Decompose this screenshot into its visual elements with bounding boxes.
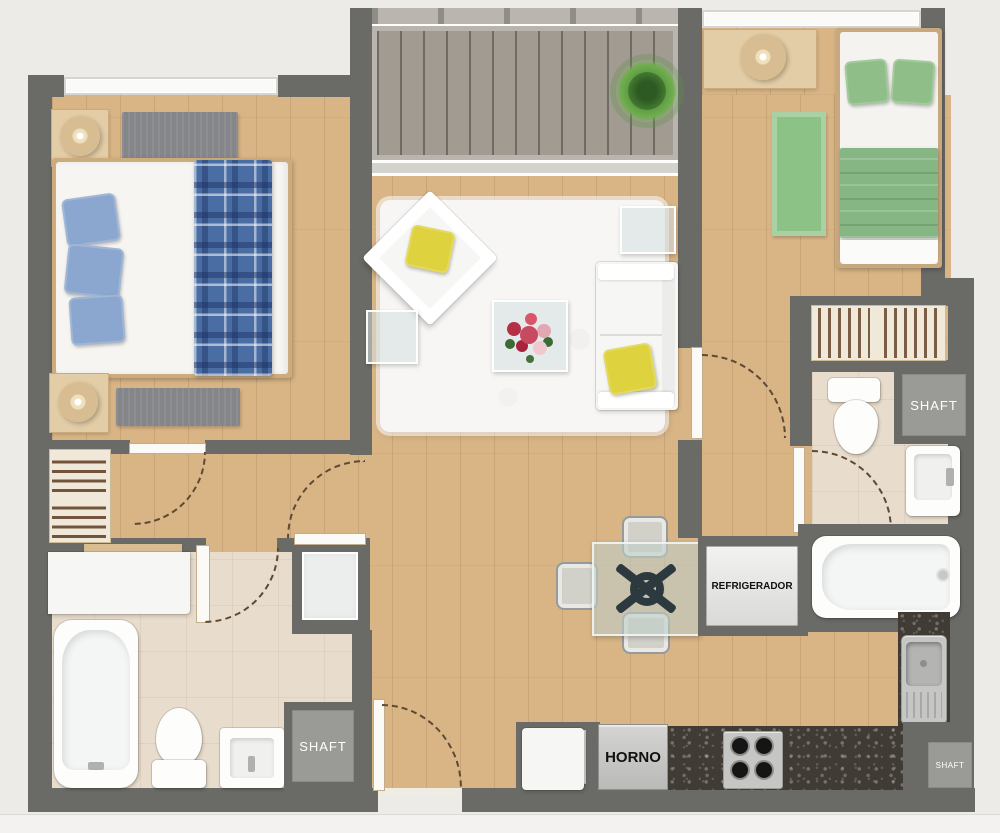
bathtub-left-faucet-icon [88,762,104,770]
entry-cabinet [522,728,584,790]
bathtub-left-basin [62,630,130,770]
kitchen-sink-drain-icon [920,660,927,667]
bed-foot-bedroom2 [840,240,938,264]
lamp-bedroom2 [740,34,786,80]
wall-top-bedroom1-left [28,75,64,97]
rug-bedroom1-bottom [116,388,240,426]
green-blanket-bedroom2 [840,148,938,238]
sofa-armrest-bottom [598,392,674,408]
shower-stall-bath1 [302,552,358,620]
bottom-surface-strip [0,814,1000,833]
window-bedroom2 [702,10,921,28]
lamp-bedroom1-top [60,116,100,156]
closet-bath-right-clothes-b [884,308,938,358]
stove-burner-4 [756,762,772,778]
closet-hall-clothes-top [52,456,106,492]
toilet-tank-bath-left [152,760,206,788]
closet-bath-right-clothes-a [818,308,870,358]
pillow-green-1 [844,58,890,105]
wall-bedroom1-bottom-b [205,440,372,454]
pillow-blue-3 [68,294,125,346]
bathtub-right-drain-icon [938,570,948,580]
floor-plan: SHAFT REFRIGERADOR HORNO SHAFT SHAFT [0,0,1000,833]
pillow-yellow-sofa [602,342,657,396]
plant-core-icon [628,72,666,110]
balcony-railing [372,8,678,26]
vanity-bath-left [48,552,190,614]
side-table-left [366,310,418,364]
dining-table-base-ring [630,572,664,606]
window-bedroom1 [64,77,278,95]
balcony-sliding-door [372,160,678,176]
pillow-green-2 [891,59,936,106]
oven-label: HORNO [605,749,661,766]
lamp-bedroom1-bottom [58,382,98,422]
wall-bottom-left [28,788,378,812]
kitchen-sink-drainboard [906,692,942,718]
wall-balcony-bedroom2-upper [678,8,702,348]
shaft-kitchen-label: SHAFT [936,761,965,770]
toilet-bowl-bath-left [156,708,202,766]
shaft-right-box: SHAFT [902,374,966,436]
stove-burner-3 [732,762,748,778]
faucet-bath-right-icon [946,468,954,486]
oven: HORNO [598,724,668,790]
rug-bedroom2 [772,112,826,236]
shaft-left-box: SHAFT [292,710,354,782]
shaft-right-label: SHAFT [910,398,958,413]
sofa-cushion-divider [600,334,662,336]
wall-closet2-top [790,296,948,306]
rug-bedroom1-top [122,112,238,162]
vanity-shelf-bath-left [84,544,182,552]
stove-burner-2 [756,738,772,754]
entry-threshold [378,788,462,796]
stove-burner-1 [732,738,748,754]
side-table-top [620,206,676,254]
bathtub-right-basin [822,544,950,610]
door-leaf-bath-right [794,448,804,532]
wall-bottom-right [462,788,975,812]
shaft-left-label: SHAFT [299,739,347,754]
kitchen-counter-bottom [668,726,903,790]
wall-living-corridor-lower [678,440,702,538]
toilet-tank-bath-right [828,378,880,402]
wall-bedroom1-living [350,8,372,455]
shaft-kitchen-box: SHAFT [928,742,972,788]
pillow-yellow-armchair [404,224,456,274]
pillow-blue-2 [64,243,125,299]
door-leaf-bedroom2 [692,348,702,438]
sofa-armrest-top [598,264,674,280]
refrigerator: REFRIGERADOR [706,546,798,626]
faucet-bath-left-icon [248,756,255,772]
plaid-blanket-bedroom1 [194,160,272,376]
flower-bouquet-icon [520,326,538,344]
sofa-backrest [662,266,675,406]
pillow-blue-1 [61,192,121,247]
closet-hall-clothes-bottom [52,502,106,538]
refrigerator-label: REFRIGERADOR [711,581,792,592]
